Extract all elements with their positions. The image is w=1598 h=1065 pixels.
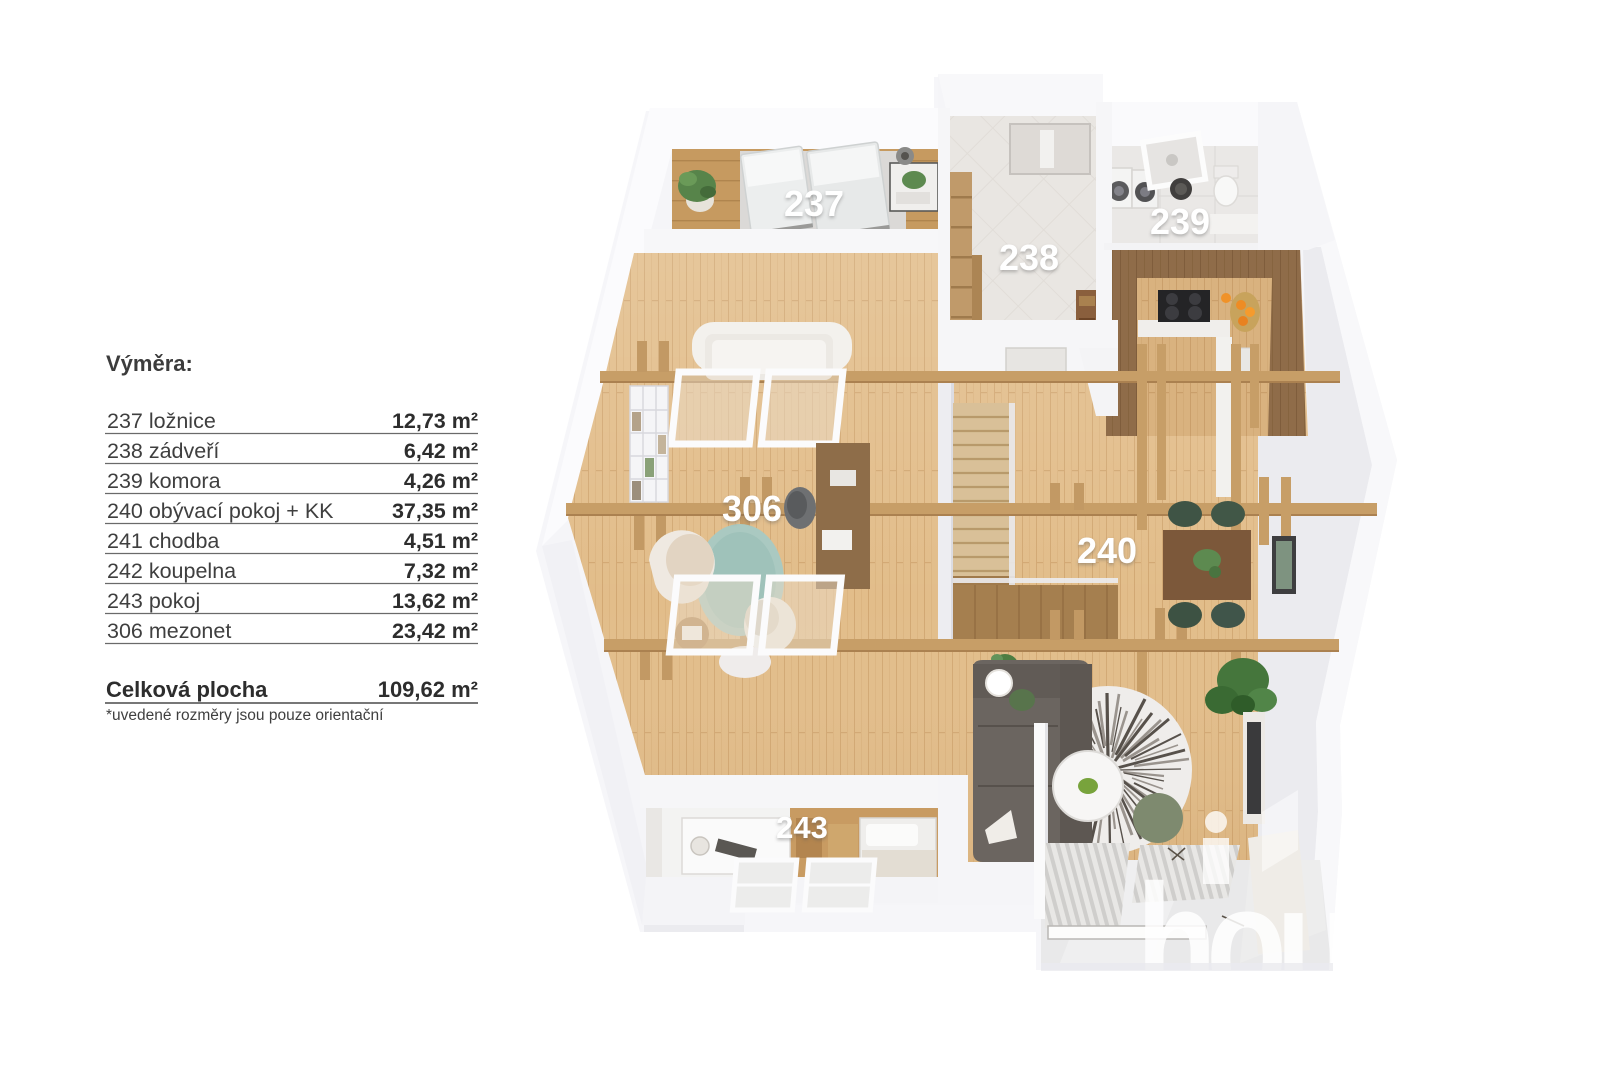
svg-text:243: 243 xyxy=(776,810,828,845)
svg-text:23,42 m²: 23,42 m² xyxy=(392,619,478,643)
svg-text:6,42 m²: 6,42 m² xyxy=(404,439,478,463)
svg-text:239 komora: 239 komora xyxy=(107,469,221,493)
svg-text:12,73 m²: 12,73 m² xyxy=(392,409,478,433)
svg-text:4,51 m²: 4,51 m² xyxy=(404,529,478,553)
svg-text:243 pokoj: 243 pokoj xyxy=(107,589,200,613)
svg-text:7,32 m²: 7,32 m² xyxy=(404,559,478,583)
svg-text:241 chodba: 241 chodba xyxy=(107,529,219,553)
svg-text:306: 306 xyxy=(722,488,782,529)
svg-text:306 mezonet: 306 mezonet xyxy=(107,619,231,643)
svg-text:240 obývací pokoj + KK: 240 obývací pokoj + KK xyxy=(107,499,334,523)
svg-text:Celková plocha: Celková plocha xyxy=(106,677,268,702)
svg-text:238 zádveří: 238 zádveří xyxy=(107,439,219,463)
svg-text:239: 239 xyxy=(1150,201,1210,242)
svg-text:237 ložnice: 237 ložnice xyxy=(107,409,216,433)
svg-text:4,26 m²: 4,26 m² xyxy=(404,469,478,493)
svg-text:242 koupelna: 242 koupelna xyxy=(107,559,236,583)
svg-text:240: 240 xyxy=(1077,530,1137,571)
svg-text:37,35 m²: 37,35 m² xyxy=(392,499,478,523)
svg-text:238: 238 xyxy=(999,237,1059,278)
svg-text:*uvedené rozměry jsou pouze or: *uvedené rozměry jsou pouze orientační xyxy=(106,707,384,724)
svg-text:109,62 m²: 109,62 m² xyxy=(378,677,478,702)
svg-text:13,62 m²: 13,62 m² xyxy=(392,589,478,613)
svg-text:237: 237 xyxy=(784,183,844,224)
svg-text:Výměra:: Výměra: xyxy=(106,351,193,376)
svg-text:hou: hou xyxy=(1136,850,1349,1040)
